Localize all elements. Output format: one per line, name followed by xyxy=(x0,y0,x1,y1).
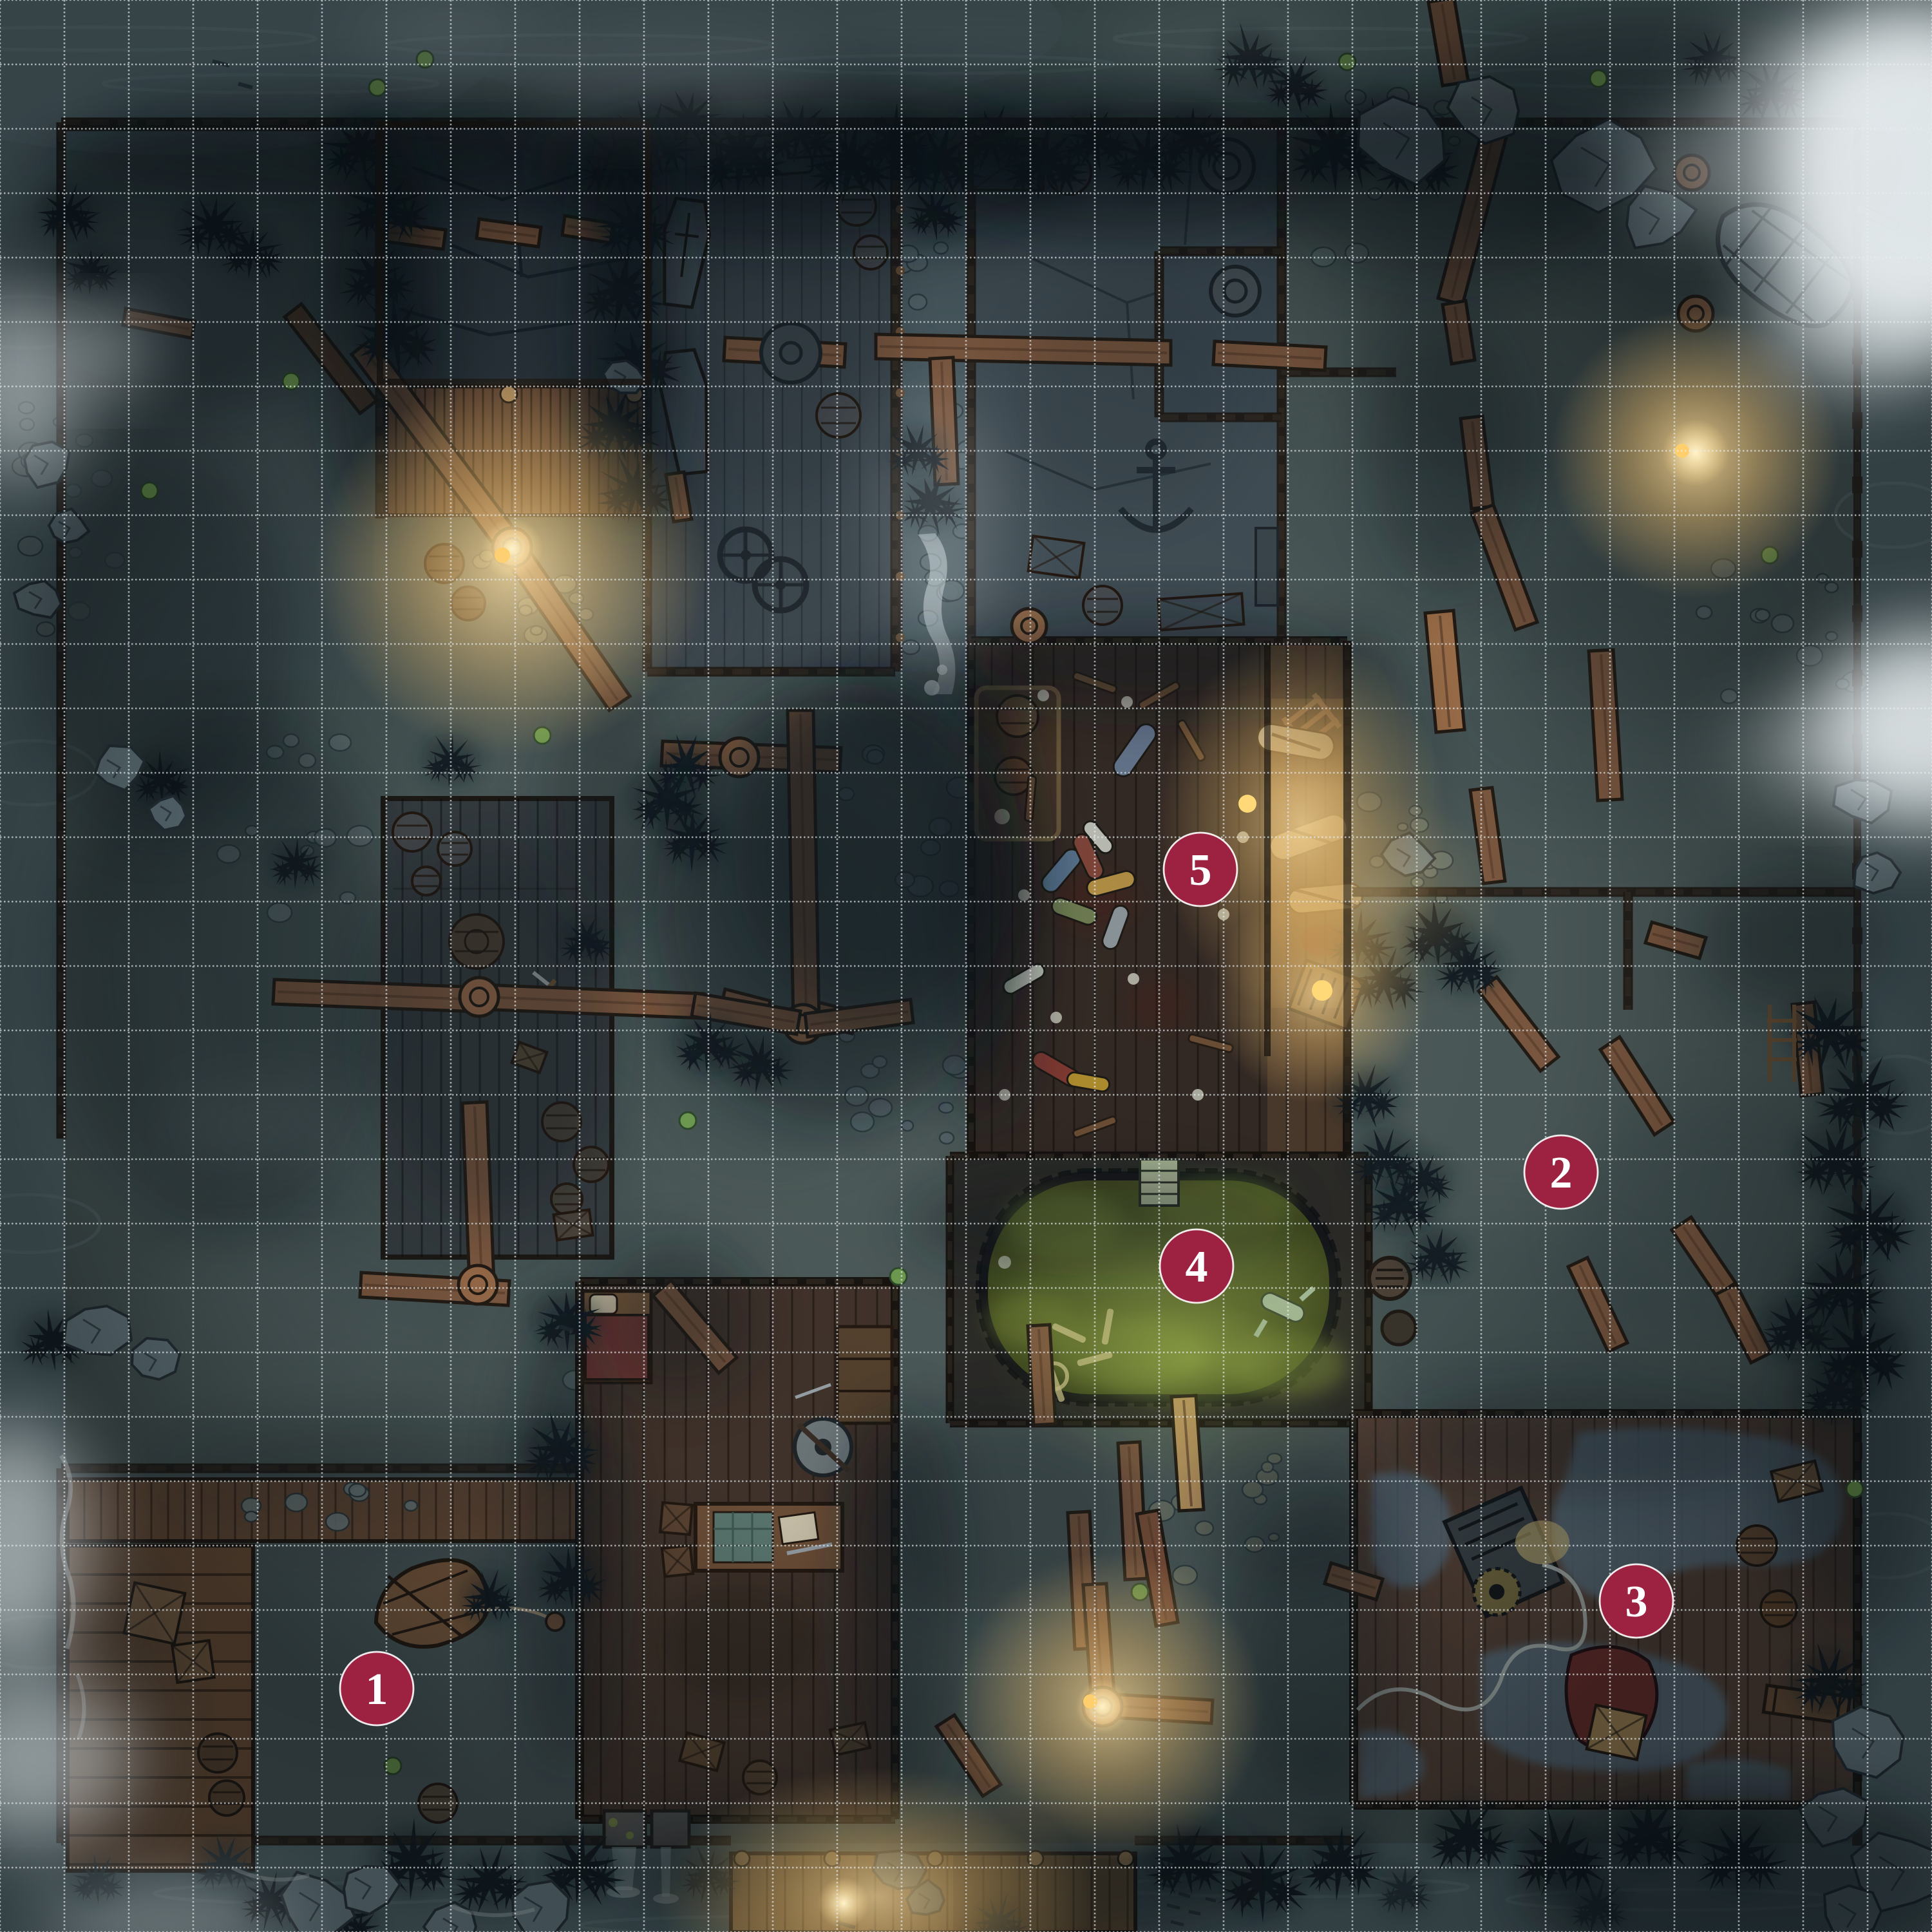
svg-text:2: 2 xyxy=(1550,1148,1573,1198)
svg-text:5: 5 xyxy=(1189,846,1212,895)
svg-text:1: 1 xyxy=(366,1665,388,1714)
svg-text:3: 3 xyxy=(1625,1577,1648,1627)
svg-text:4: 4 xyxy=(1186,1242,1208,1292)
